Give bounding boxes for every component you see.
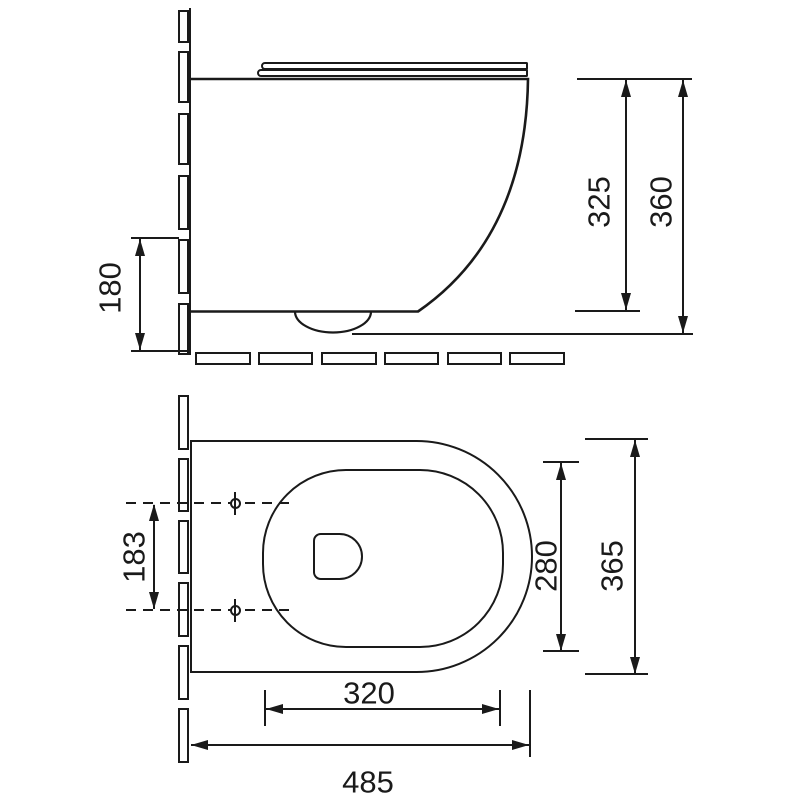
plan-wall-hatch — [178, 708, 189, 763]
floor-hatch — [258, 352, 313, 365]
dim-180-ext-bottom — [131, 350, 189, 352]
fixing-centreline-bottom — [126, 609, 289, 611]
dim-360-label: 360 — [646, 176, 677, 228]
dim-485-arrow-left — [191, 740, 208, 750]
dim-180-arrow-up — [135, 239, 145, 256]
fixing-hole-bottom-crossmark — [234, 599, 236, 622]
dim-height-ext-top — [577, 78, 692, 80]
dim-180-label: 180 — [95, 262, 126, 314]
dim-365-arrow-down — [630, 657, 640, 674]
dim-360-arrow-up — [678, 80, 688, 97]
dim-360-line — [682, 80, 684, 333]
plan-wall-hatch — [178, 645, 189, 700]
dim-365-line — [634, 440, 636, 674]
seat-lid-bottom-slab — [257, 69, 528, 77]
dim-325-ref-bottom — [575, 310, 640, 312]
dim-325-line — [625, 80, 627, 310]
dim-360-arrow-down — [678, 316, 688, 333]
side-body-outline — [0, 0, 800, 800]
dim-320-label: 320 — [343, 678, 395, 709]
floor-hatch — [447, 352, 502, 365]
floor-hatch — [195, 352, 251, 365]
dim-320-ext-right — [499, 690, 501, 726]
dim-325-arrow-up — [621, 80, 631, 97]
floor-hatch — [509, 352, 565, 365]
floor-line — [352, 333, 693, 335]
dim-365-arrow-up — [630, 440, 640, 457]
dim-183-arrow-down — [149, 592, 159, 609]
dim-485-arrow-right — [512, 740, 529, 750]
plan-sump-d-shape — [313, 533, 363, 580]
dim-485-line — [191, 744, 529, 746]
dim-485-label: 485 — [342, 767, 394, 798]
dim-183-label: 183 — [119, 531, 150, 583]
floor-hatch — [384, 352, 439, 365]
dim-280-label: 280 — [531, 540, 562, 592]
dim-365-label: 365 — [597, 540, 628, 592]
dim-280-arrow-down — [556, 634, 566, 651]
plan-rim-oval — [262, 469, 504, 648]
dim-183-arrow-up — [149, 504, 159, 521]
dim-485-ext-right — [529, 690, 531, 757]
dim-325-arrow-down — [621, 293, 631, 310]
floor-hatch — [321, 352, 377, 365]
plan-wall-hatch — [178, 520, 189, 574]
dim-320-arrow-left — [266, 704, 283, 714]
fixing-hole-top-crossmark — [234, 492, 236, 515]
dim-325-label: 325 — [584, 176, 615, 228]
plan-wall-hatch — [178, 395, 189, 450]
dim-280-arrow-up — [556, 463, 566, 480]
toilet-technical-drawing: 180 325 360 183 280 365 320 — [0, 0, 800, 800]
dim-320-arrow-right — [482, 704, 499, 714]
dim-180-arrow-down — [135, 333, 145, 350]
